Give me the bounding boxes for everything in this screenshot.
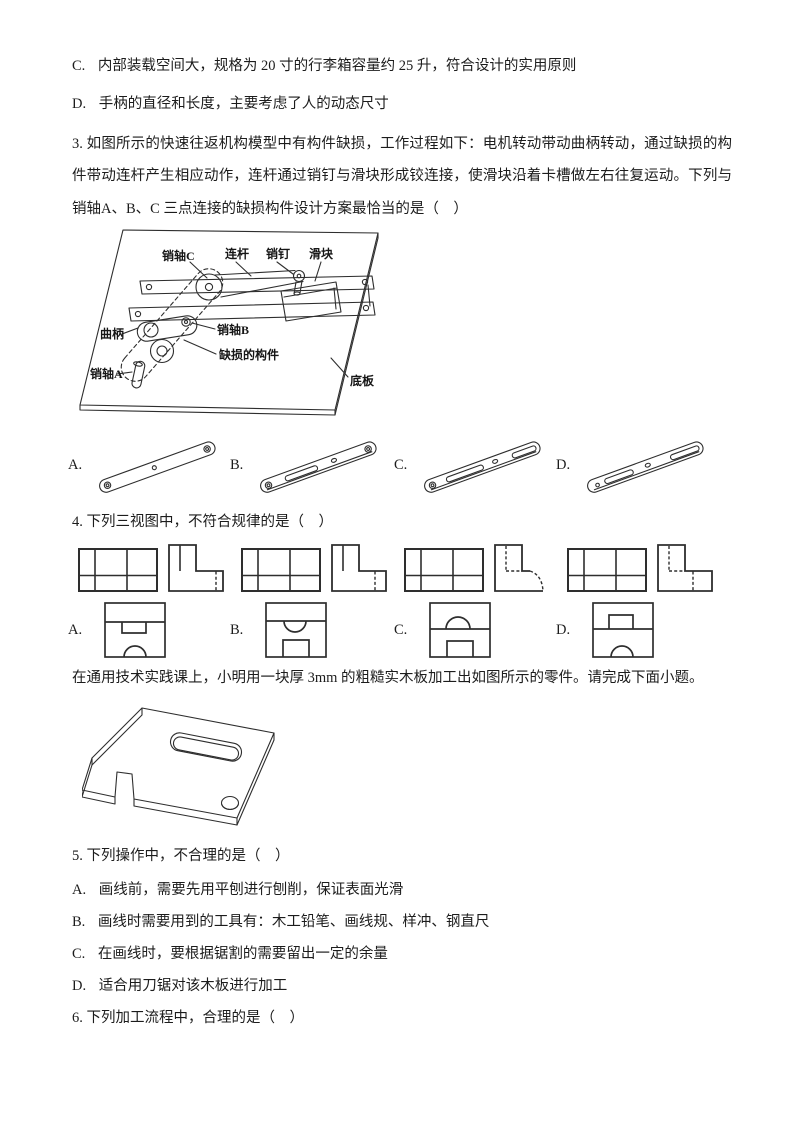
label-missing-component: 缺损的构件: [219, 347, 279, 362]
exam-document-page: C. 内部装载空间大，规格为 20 寸的行李箱容量约 25 升，符合设计的实用原…: [0, 0, 794, 1123]
option-text: 内部装载空间大，规格为 20 寸的行李箱容量约 25 升，符合设计的实用原则: [98, 58, 577, 74]
q4-views-row: [78, 544, 713, 592]
option-label: B.: [72, 912, 85, 933]
option-text: 画线前，需要先用平刨进行刨削，保证表面光滑: [99, 882, 404, 898]
q4-option-a: A.: [68, 602, 166, 658]
slider-block: [281, 282, 341, 321]
q3-option-c-figure: [413, 424, 549, 506]
option-label: A.: [68, 622, 82, 639]
q4-view-pair1-side: [168, 544, 224, 592]
q5-option-a: A. 画线前，需要先用平刨进行刨削，保证表面光滑: [72, 880, 403, 901]
option-label: A.: [68, 457, 82, 474]
part-top-face: [82, 708, 274, 818]
option-text: 手柄的直径和长度，主要考虑了人的动态尺寸: [99, 96, 389, 112]
option-label: C.: [72, 56, 85, 77]
q3-option-a-figure: [88, 424, 224, 506]
q3-mechanism-figure: 销轴C 连杆 销钉 滑块 曲柄 销轴B 缺损的构件 销轴A 底板: [78, 224, 408, 422]
q4-option-b-figure: [265, 602, 327, 658]
label-link: 连杆: [225, 246, 249, 261]
label-crank: 曲柄: [100, 326, 124, 341]
q4-view-pair4-front: [567, 548, 647, 592]
label-base-plate: 底板: [350, 373, 375, 388]
q4-view-pair4-side: [657, 544, 713, 592]
label-slider: 滑块: [309, 246, 334, 261]
option-label: C.: [394, 622, 407, 639]
q4-option-b: B.: [230, 602, 327, 658]
q3-option-c: C.: [394, 424, 549, 506]
q4-option-d: D.: [556, 602, 654, 658]
q3-stem: 3. 如图所示的快速往返机构模型中有构件缺损，工作过程如下：电机转动带动曲柄转动…: [72, 128, 732, 225]
q4-view-pair3-side: [494, 544, 550, 592]
label-pin-a: 销轴A: [90, 366, 123, 381]
q5-option-c: C. 在画线时，要根据锯割的需要留出一定的余量: [72, 944, 388, 965]
prev-option-d-line: D. 手柄的直径和长度，主要考虑了人的动态尺寸: [72, 94, 389, 115]
q4-view-pair2-side: [331, 544, 387, 592]
label-pin: 销钉: [266, 246, 290, 261]
q5-option-b: B. 画线时需要用到的工具有：木工铅笔、画线规、样冲、钢直尺: [72, 912, 489, 933]
q4-stem: 4. 下列三视图中，不符合规律的是（ ）: [72, 512, 333, 533]
q4-view-pair1-front: [78, 548, 158, 592]
q4-view-pair2-front: [241, 548, 321, 592]
label-pin-b: 销轴B: [217, 322, 249, 337]
q3-option-b-figure: [249, 424, 385, 506]
option-text: 适合用刀锯对该木板进行加工: [99, 978, 288, 994]
q4-option-c: C.: [394, 602, 491, 658]
missing-component-dashed: [116, 263, 229, 387]
option-label: D.: [72, 976, 86, 997]
q5-stem: 5. 下列操作中，不合理的是（ ）: [72, 846, 290, 867]
option-label: B.: [230, 457, 243, 474]
q3-option-a: A.: [68, 424, 224, 506]
q4-option-d-figure: [592, 602, 654, 658]
q3-option-d: D.: [556, 424, 712, 506]
option-label: A.: [72, 880, 86, 901]
q4-option-c-figure: [429, 602, 491, 658]
q6-stem: 6. 下列加工流程中，合理的是（ ）: [72, 1008, 304, 1029]
label-pin-c: 销轴C: [162, 248, 195, 263]
option-label: C.: [394, 457, 407, 474]
option-label: D.: [556, 622, 570, 639]
q5-option-d: D. 适合用刀锯对该木板进行加工: [72, 976, 287, 997]
option-text: 在画线时，要根据锯割的需要留出一定的余量: [98, 946, 388, 962]
prev-option-c-line: C. 内部装载空间大，规格为 20 寸的行李箱容量约 25 升，符合设计的实用原…: [72, 56, 576, 77]
wood-part-3d-figure: [82, 700, 342, 840]
option-label: B.: [230, 622, 243, 639]
option-label: D.: [556, 457, 570, 474]
option-label: C.: [72, 944, 85, 965]
q3-option-b: B.: [230, 424, 385, 506]
q4-option-a-figure: [104, 602, 166, 658]
q4-view-pair3-front: [404, 548, 484, 592]
passage: 在通用技术实践课上，小明用一块厚 3mm 的粗糙实木板加工出如图所示的零件。请完…: [72, 668, 704, 689]
option-text: 画线时需要用到的工具有：木工铅笔、画线规、样冲、钢直尺: [98, 914, 490, 930]
option-label: D.: [72, 94, 86, 115]
q3-option-d-figure: [576, 424, 712, 506]
